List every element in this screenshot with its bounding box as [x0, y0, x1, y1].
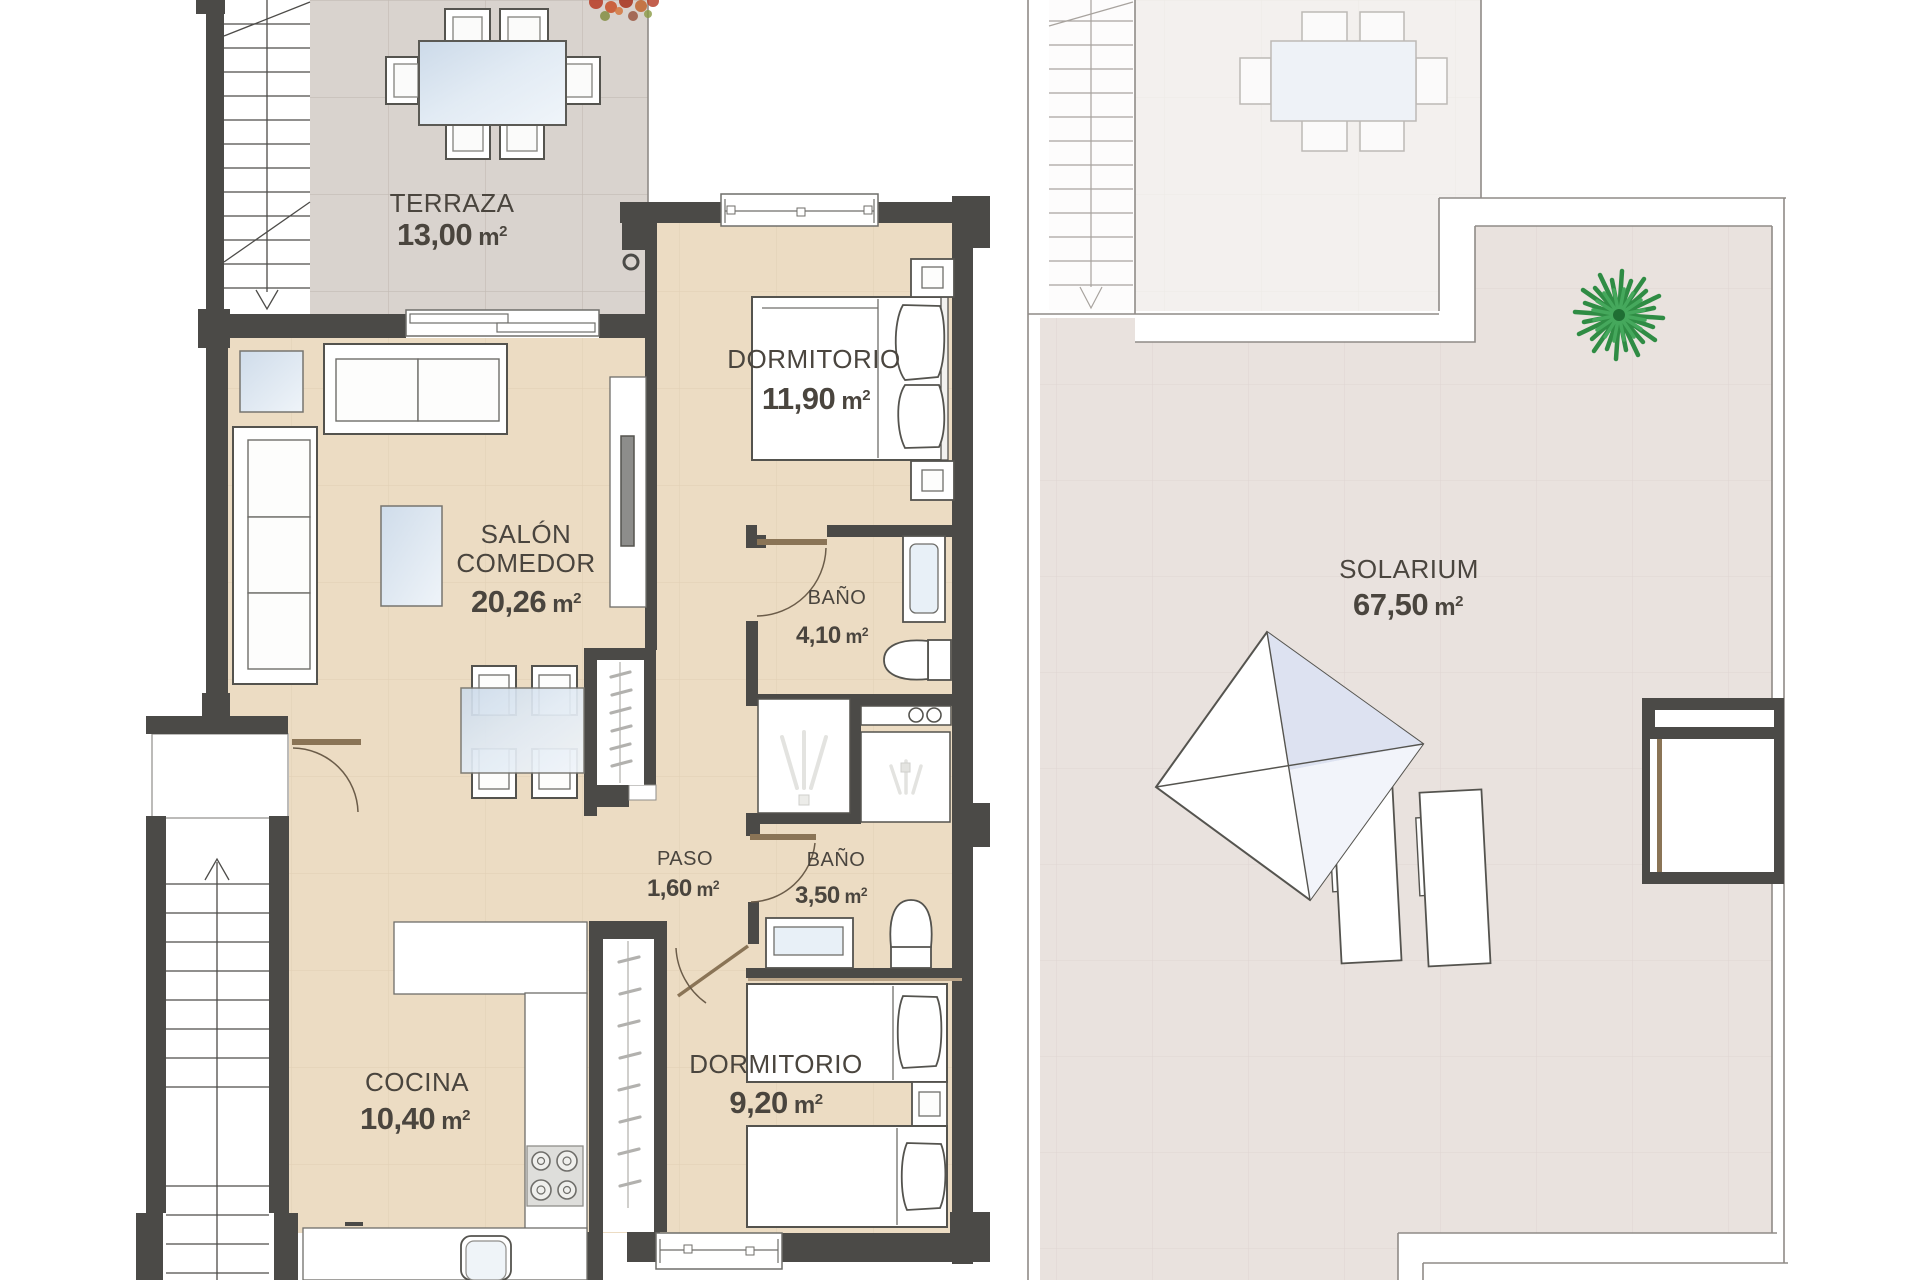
svg-text:SOLARIUM: SOLARIUM [1339, 554, 1479, 584]
svg-text:PASO: PASO [657, 848, 713, 870]
svg-text:BAÑO: BAÑO [808, 585, 867, 609]
svg-text:BAÑO: BAÑO [807, 847, 866, 871]
svg-text:DORMITORIO: DORMITORIO [727, 344, 901, 374]
svg-text:4,10 m2: 4,10 m2 [796, 622, 869, 649]
svg-text:COCINA: COCINA [365, 1067, 469, 1097]
svg-text:SALÓN: SALÓN [481, 519, 572, 549]
svg-text:DORMITORIO: DORMITORIO [689, 1049, 863, 1079]
svg-text:1,60 m2: 1,60 m2 [647, 875, 720, 902]
svg-text:TERRAZA: TERRAZA [390, 188, 515, 218]
svg-text:3,50 m2: 3,50 m2 [795, 882, 868, 909]
svg-text:COMEDOR: COMEDOR [456, 548, 595, 578]
